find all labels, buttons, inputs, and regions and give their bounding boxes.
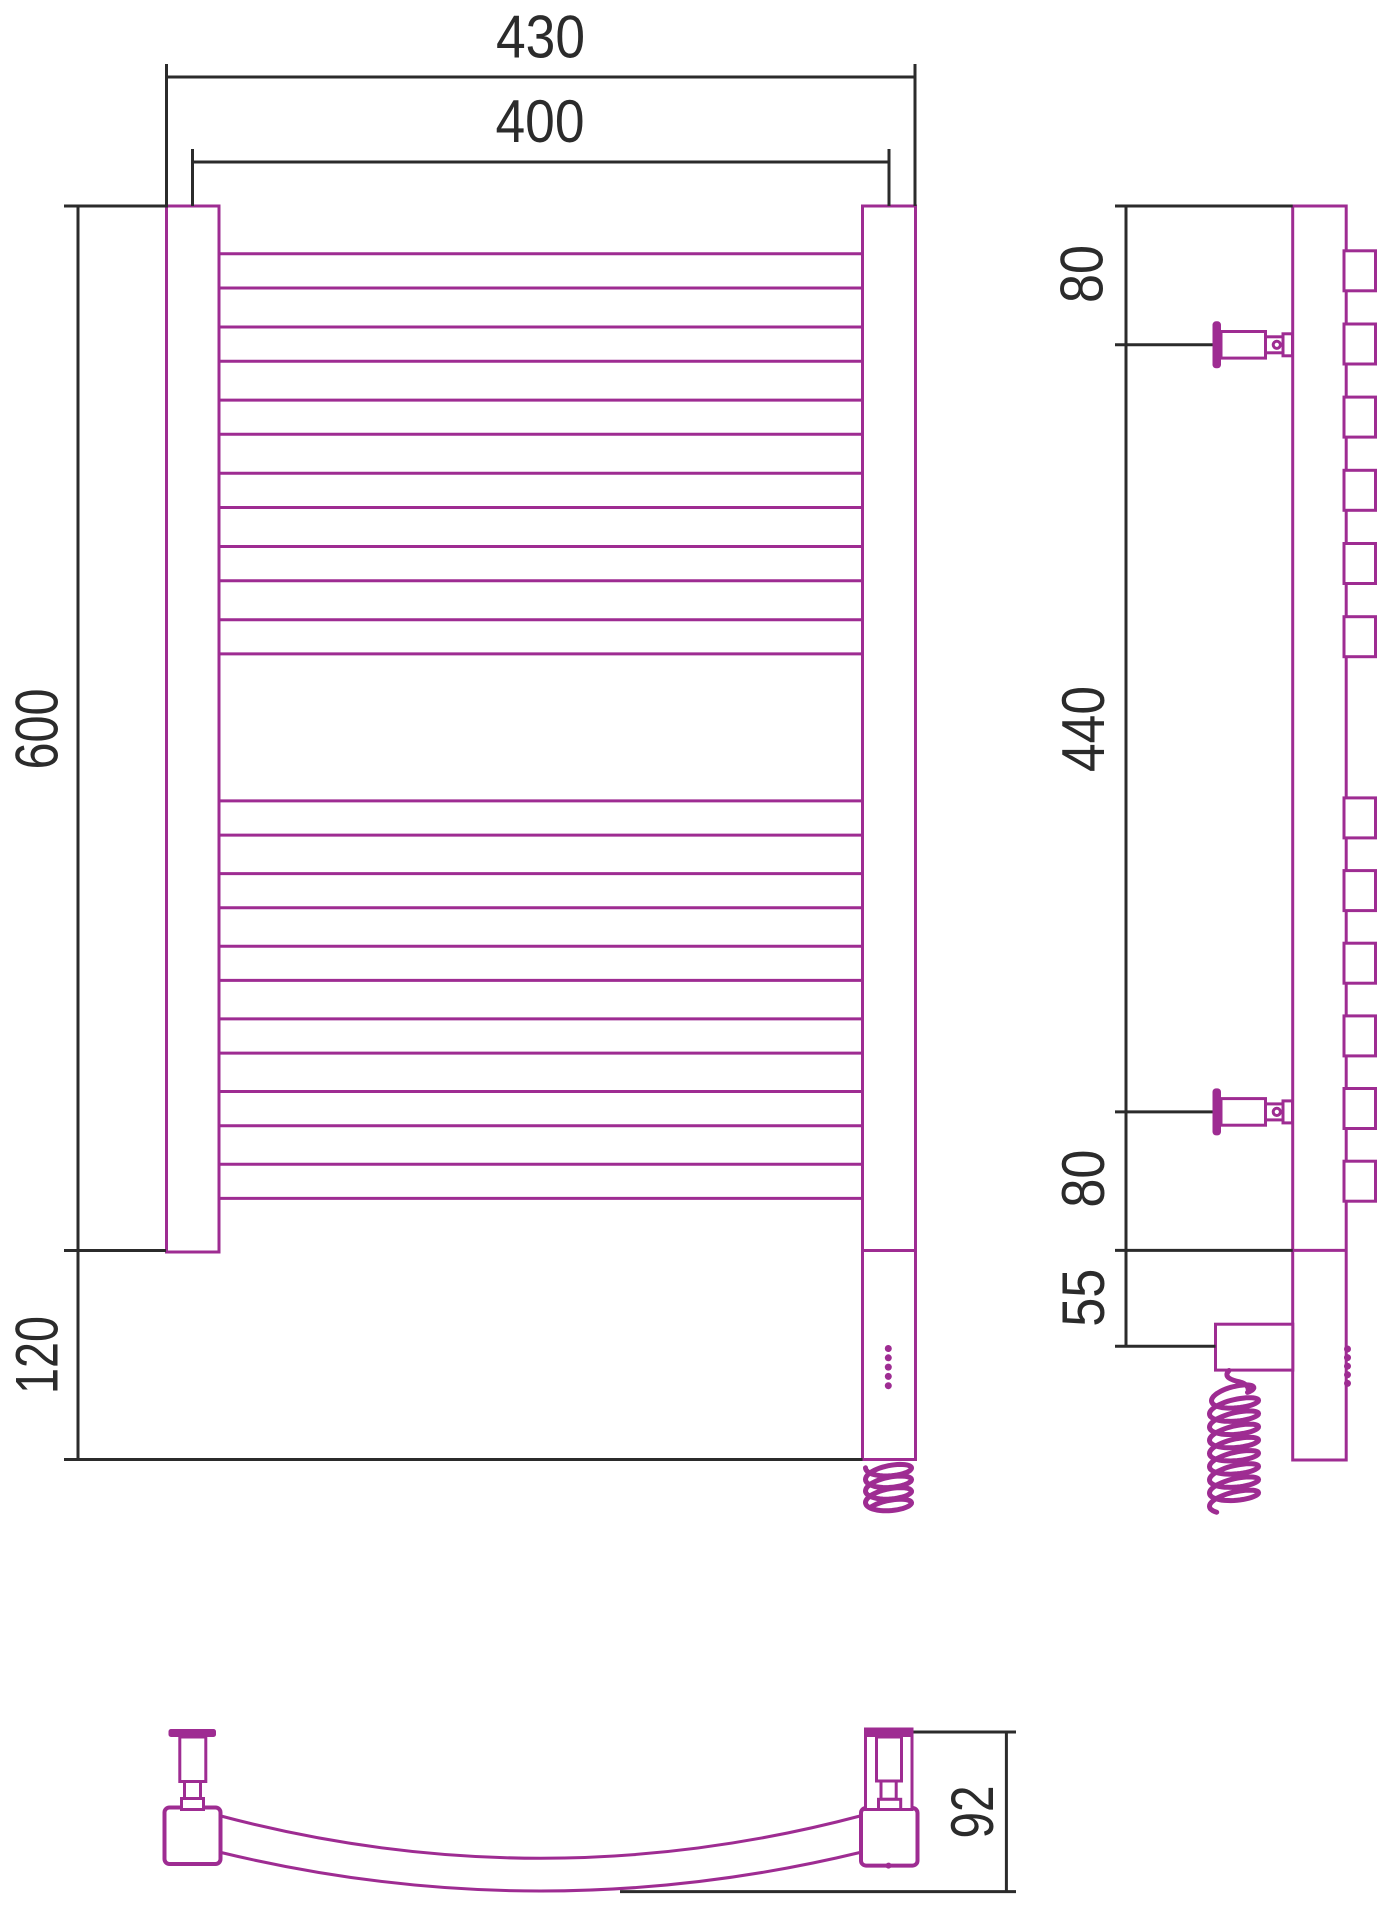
svg-text:55: 55 [1050,1269,1117,1327]
svg-text:600: 600 [4,689,71,770]
svg-text:120: 120 [4,1316,71,1394]
svg-text:400: 400 [496,88,585,155]
svg-text:80: 80 [1048,245,1115,303]
svg-text:80: 80 [1050,1150,1117,1208]
svg-text:430: 430 [496,4,585,71]
svg-text:440: 440 [1050,686,1117,772]
svg-text:92: 92 [939,1786,1006,1839]
